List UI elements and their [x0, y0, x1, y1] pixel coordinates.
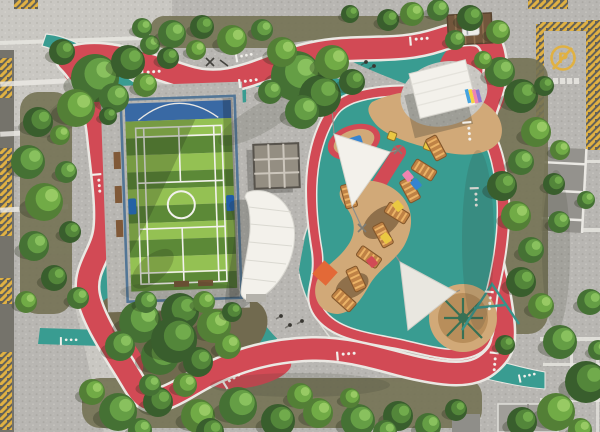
park-scene-canvas: P	[0, 0, 600, 432]
photo-warm-grade	[0, 0, 600, 432]
aerial-park-photo: P	[0, 0, 600, 432]
